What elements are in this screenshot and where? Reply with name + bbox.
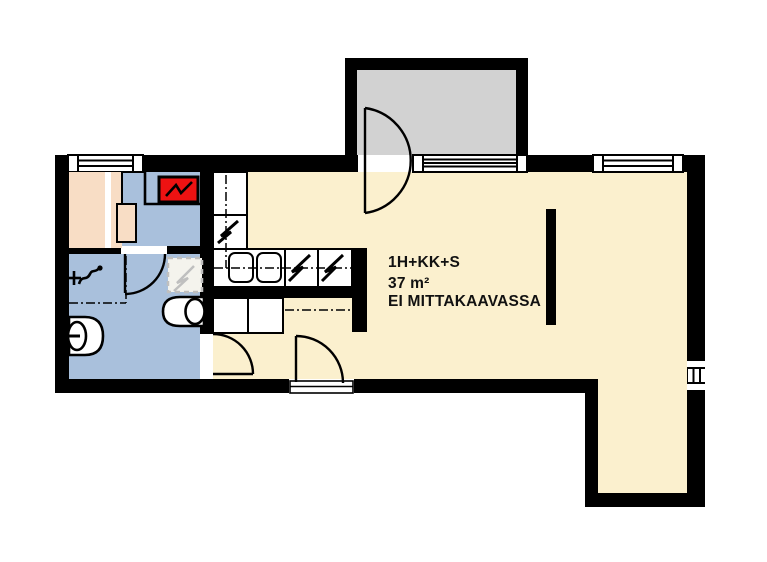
wall-left (55, 155, 69, 393)
sauna-stove-icon (159, 177, 198, 202)
floor-plan-svg: 1H+KK+S 37 m² EI MITTAKAAVASSA (0, 0, 767, 562)
washing-machine-reservation (168, 258, 202, 292)
apartment-type-label: 1H+KK+S (388, 254, 460, 271)
right-window-icon (593, 155, 683, 172)
hall-closet (248, 298, 283, 333)
balcony-door-opening (358, 155, 413, 172)
washbasin (163, 297, 205, 326)
wall-kitchen-right (352, 248, 367, 332)
area-label: 37 m² (388, 275, 430, 292)
main-room-floor-extension (598, 379, 687, 493)
sauna-bench-step (117, 204, 136, 242)
floor-plan-page: 1H+KK+S 37 m² EI MITTAKAAVASSA (0, 0, 767, 562)
wall-step (585, 379, 598, 507)
toilet (62, 317, 103, 355)
tall-cabinet (213, 172, 247, 215)
bathroom-door-opening (200, 334, 213, 379)
vent-grille-icon (687, 361, 706, 390)
sauna-window-icon (68, 155, 143, 172)
wall-kitchen-hall (208, 287, 367, 298)
partition-wall (546, 209, 556, 325)
sauna-bench (69, 172, 105, 248)
appliance-icon (213, 215, 247, 249)
sauna-door-opening (121, 246, 167, 254)
balcony-window-icon (413, 155, 527, 172)
hall-closet (213, 298, 248, 333)
wall-right (687, 155, 705, 507)
scale-note-label: EI MITTAKAAVASSA (388, 293, 541, 310)
bench-gap (105, 172, 111, 248)
